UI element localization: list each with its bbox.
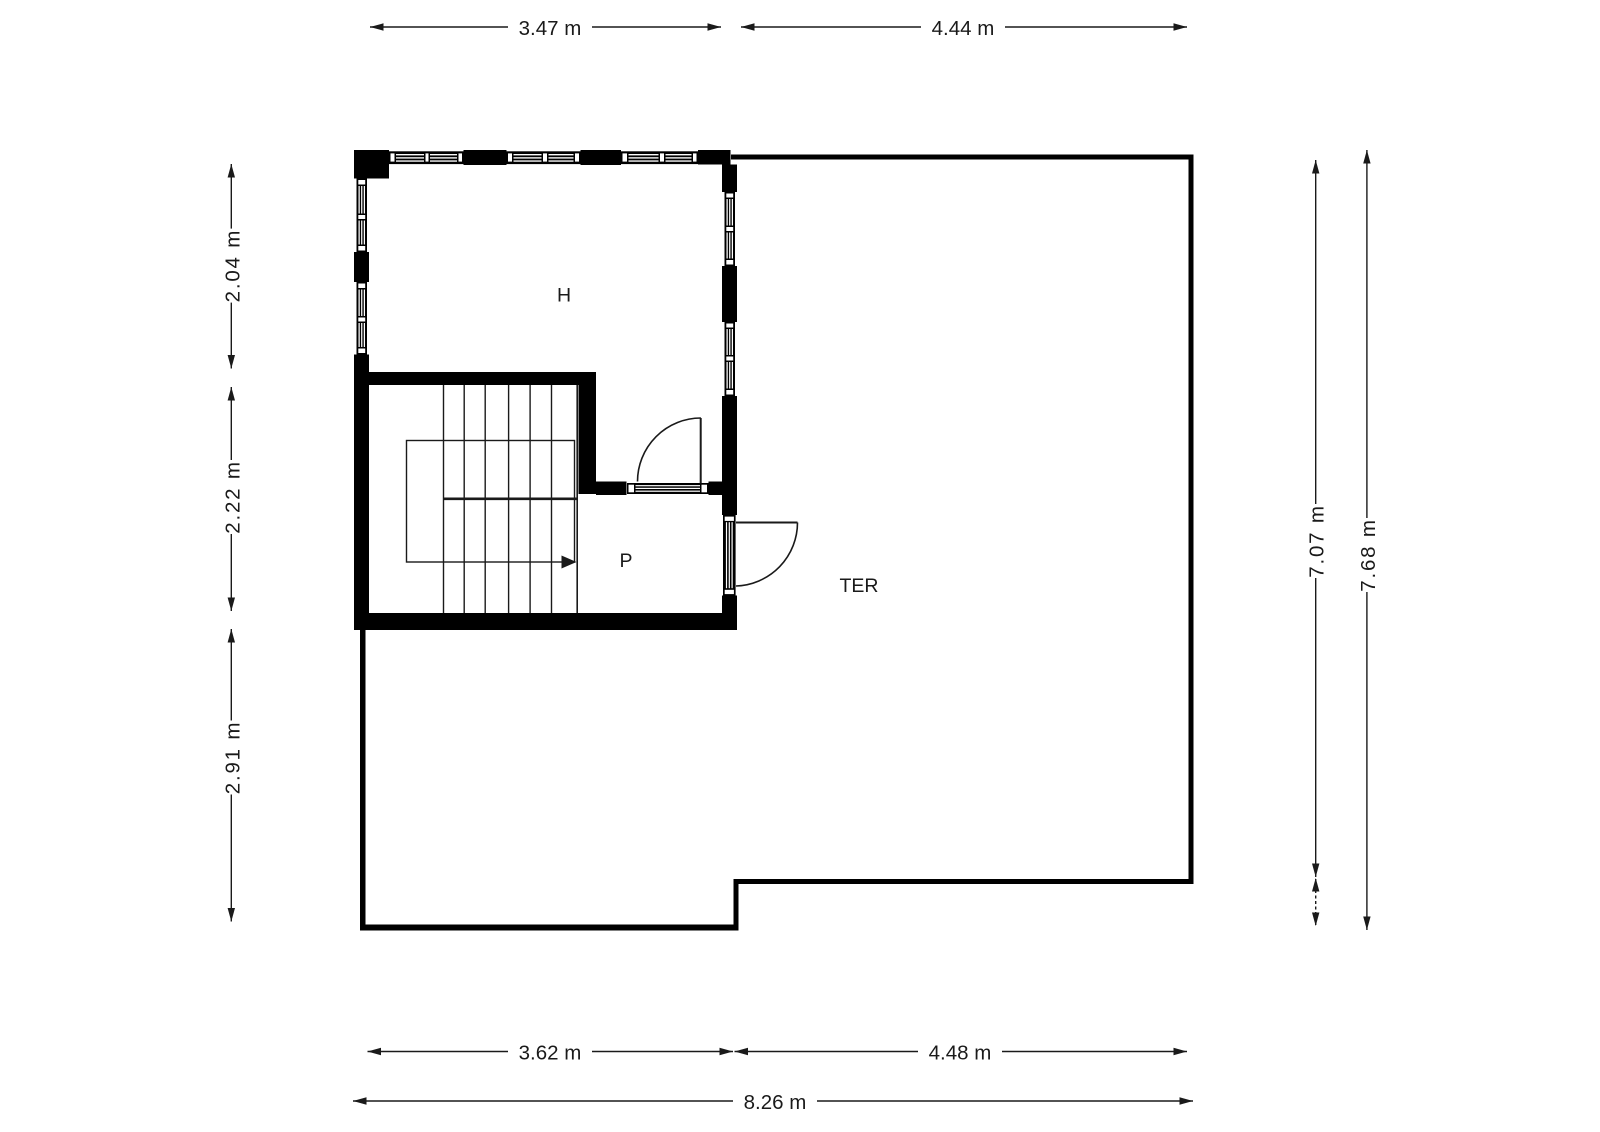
svg-text:P: P <box>619 550 632 572</box>
svg-text:2.22 m: 2.22 m <box>221 460 244 533</box>
svg-text:8.26 m: 8.26 m <box>744 1091 807 1114</box>
svg-text:7.68 m: 7.68 m <box>1357 518 1380 591</box>
svg-text:4.44 m: 4.44 m <box>932 17 995 40</box>
svg-text:7.07 m: 7.07 m <box>1306 504 1329 577</box>
svg-text:2.04 m: 2.04 m <box>221 229 244 302</box>
svg-text:4.48 m: 4.48 m <box>929 1042 992 1065</box>
svg-text:H: H <box>557 284 571 306</box>
svg-text:TER: TER <box>840 575 879 597</box>
svg-text:3.62 m: 3.62 m <box>519 1042 582 1065</box>
svg-text:3.47 m: 3.47 m <box>519 17 582 40</box>
svg-text:2.91 m: 2.91 m <box>221 721 244 794</box>
